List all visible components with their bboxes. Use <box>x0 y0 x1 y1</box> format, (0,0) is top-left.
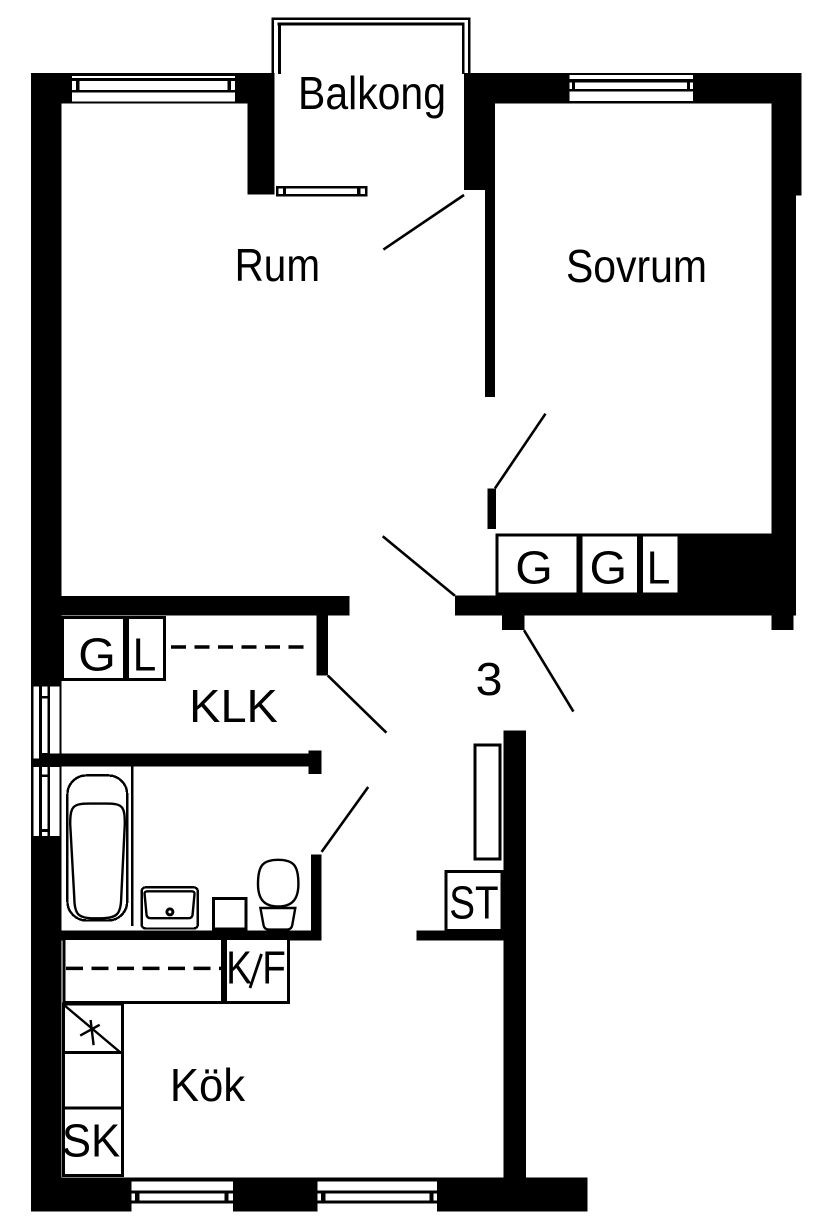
svg-text:L: L <box>133 630 157 681</box>
svg-text:G: G <box>590 542 628 594</box>
svg-text:Balkong: Balkong <box>298 69 446 120</box>
svg-text:K: K <box>226 942 252 993</box>
svg-text:Rum: Rum <box>235 241 320 292</box>
svg-text:Kök: Kök <box>170 1059 246 1111</box>
svg-text:KLK: KLK <box>189 680 278 731</box>
svg-text:G: G <box>78 629 116 681</box>
svg-text:Sovrum: Sovrum <box>566 242 707 293</box>
svg-text:ST: ST <box>449 877 498 928</box>
svg-text:3: 3 <box>476 653 503 705</box>
svg-text:F: F <box>262 942 286 993</box>
svg-text:L: L <box>647 543 671 594</box>
svg-text:G: G <box>515 542 553 594</box>
svg-text:SK: SK <box>62 1115 120 1167</box>
